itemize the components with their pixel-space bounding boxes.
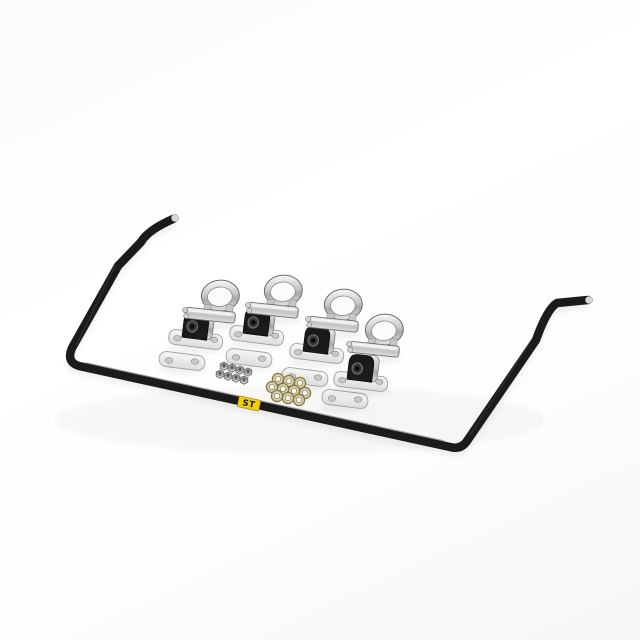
sway-bar-kit-scene: ST bbox=[0, 0, 640, 640]
backing-plate-1 bbox=[157, 351, 207, 375]
sway-bar-end-tip bbox=[171, 214, 178, 221]
hex-nut bbox=[232, 374, 240, 382]
sway-bar-highlight bbox=[76, 264, 116, 346]
hex-nut bbox=[228, 364, 236, 372]
product-photo: ST bbox=[0, 0, 640, 640]
washer bbox=[293, 394, 304, 405]
hex-nut bbox=[216, 370, 224, 378]
washer-cluster bbox=[266, 373, 310, 405]
washer bbox=[282, 392, 293, 403]
hex-nut bbox=[224, 372, 232, 380]
hex-nut bbox=[236, 366, 244, 374]
washer bbox=[271, 390, 282, 401]
sway-bar-end-tip bbox=[585, 296, 592, 303]
hex-nut bbox=[240, 376, 248, 384]
hex-nut bbox=[244, 368, 252, 376]
hex-nut bbox=[220, 362, 228, 370]
